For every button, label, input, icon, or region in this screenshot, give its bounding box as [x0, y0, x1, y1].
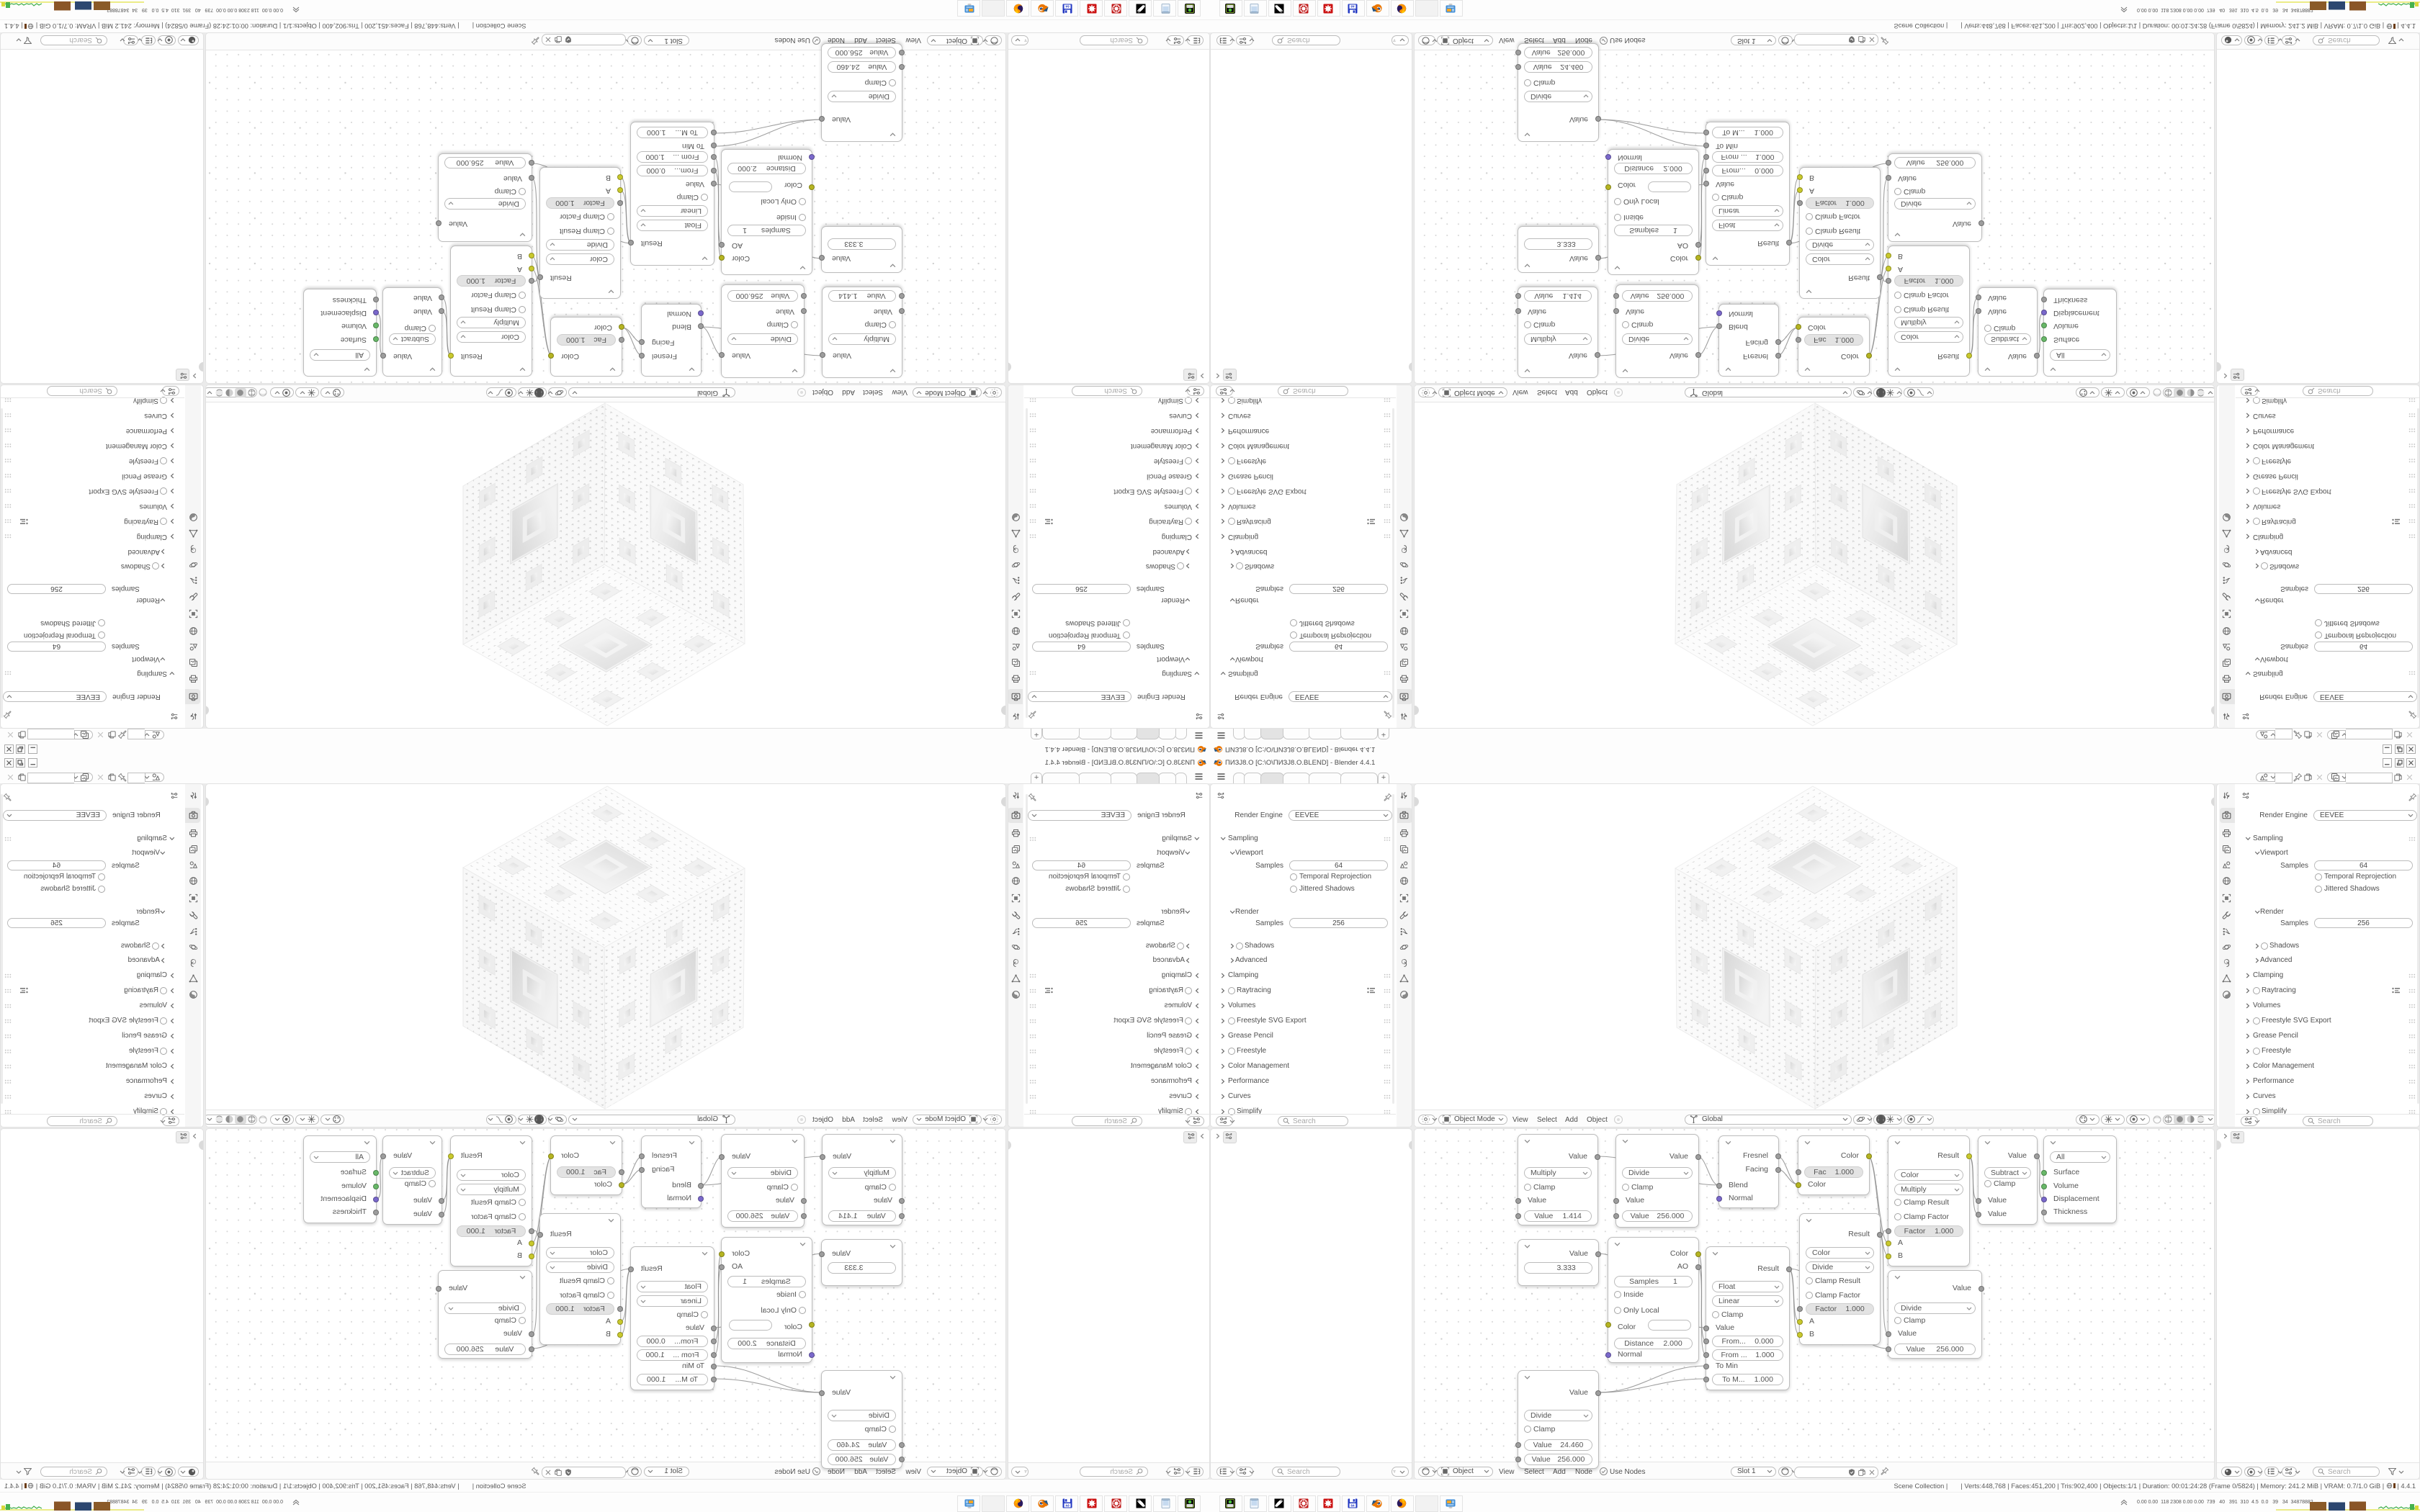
svg-text:64: 64 — [1065, 1503, 1070, 1507]
svg-text:64: 64 — [1065, 5, 1070, 9]
svg-text:64: 64 — [1350, 5, 1355, 9]
svg-text:64: 64 — [1350, 1503, 1355, 1507]
